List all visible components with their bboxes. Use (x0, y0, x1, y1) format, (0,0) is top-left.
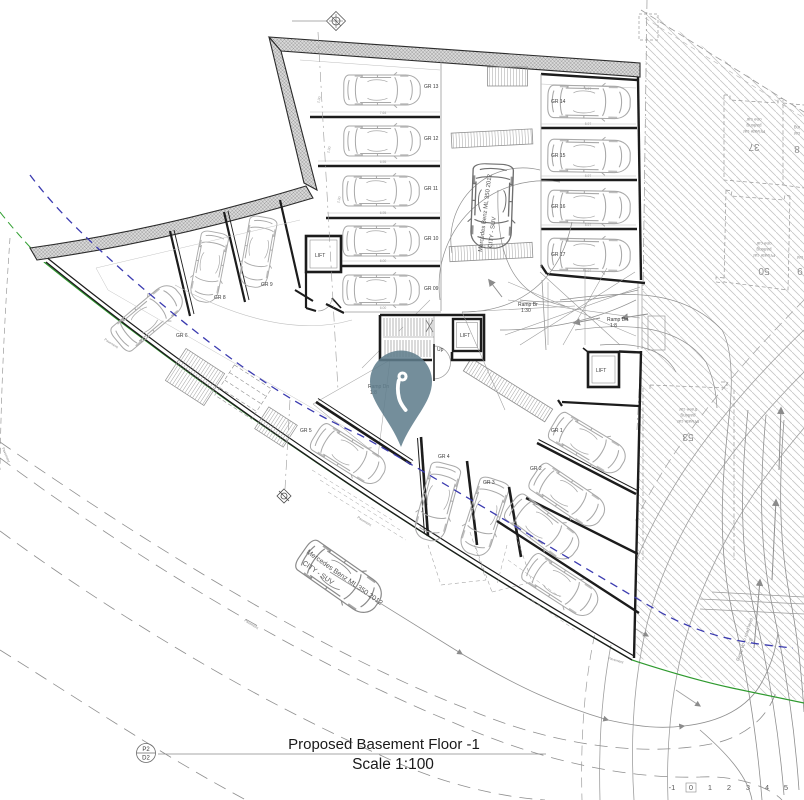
svg-text:6.95: 6.95 (380, 211, 387, 215)
svg-text:D2: D2 (142, 756, 150, 762)
svg-text:GR 13: GR 13 (424, 84, 439, 90)
svg-text:parking: parking (756, 247, 772, 252)
svg-text:5.97: 5.97 (585, 122, 592, 126)
svg-text:GR 2: GR 2 (530, 466, 542, 472)
svg-text:6.00: 6.00 (380, 306, 387, 310)
svg-text:GR 09: GR 09 (424, 286, 439, 292)
svg-text:2: 2 (727, 783, 731, 792)
svg-text:LIFT: LIFT (460, 333, 470, 339)
svg-text:P2: P2 (142, 747, 150, 753)
svg-text:6.95: 6.95 (380, 160, 387, 164)
svg-text:1: 1 (708, 783, 712, 792)
svg-text:Private car: Private car (753, 253, 775, 258)
svg-text:6.00: 6.00 (380, 259, 387, 263)
svg-text:GR 5: GR 5 (300, 428, 312, 434)
svg-text:GR 17: GR 17 (551, 252, 566, 258)
svg-text:Up: Up (437, 347, 444, 353)
svg-text:GR 10: GR 10 (424, 236, 439, 242)
svg-text:LIFT: LIFT (596, 368, 606, 374)
svg-text:car: car (796, 255, 803, 260)
svg-text:37: 37 (748, 141, 760, 152)
svg-text:Scale 1:100: Scale 1:100 (352, 756, 434, 773)
svg-text:Proposed Basement Floor -1: Proposed Basement Floor -1 (288, 736, 480, 753)
svg-text:GR 6: GR 6 (176, 333, 188, 339)
svg-text:one car: one car (746, 117, 762, 122)
svg-text:three car: three car (678, 407, 697, 412)
svg-text:ing: ing (793, 125, 800, 130)
svg-text:5.97: 5.97 (585, 174, 592, 178)
svg-text:8: 8 (794, 143, 800, 154)
svg-text:1:30: 1:30 (521, 308, 531, 314)
svg-text:5: 5 (784, 783, 788, 792)
svg-text:50: 50 (758, 265, 770, 276)
svg-text:GR 4: GR 4 (438, 454, 450, 460)
svg-text:LIFT: LIFT (315, 253, 325, 259)
svg-text:GR 9: GR 9 (261, 282, 273, 288)
svg-text:parking: parking (746, 123, 762, 128)
svg-text:Private car: Private car (743, 129, 765, 134)
svg-text:GR 8: GR 8 (214, 295, 226, 301)
svg-text:7.64: 7.64 (380, 111, 387, 115)
svg-text:GR 1: GR 1 (551, 428, 563, 434)
svg-text:one car: one car (756, 241, 772, 246)
svg-text:GR 15: GR 15 (551, 153, 566, 159)
svg-text:9: 9 (797, 265, 803, 276)
svg-text:GR 16: GR 16 (551, 204, 566, 210)
svg-text:5.97: 5.97 (585, 87, 592, 91)
svg-text:5.97: 5.97 (585, 223, 592, 227)
svg-text:GR 12: GR 12 (424, 136, 439, 142)
svg-text:1:8: 1:8 (610, 323, 617, 329)
svg-text:GR 14: GR 14 (551, 99, 566, 105)
svg-text:5.97: 5.97 (585, 269, 592, 273)
svg-text:GR 11: GR 11 (424, 186, 438, 192)
svg-text:parking: parking (680, 413, 696, 418)
svg-text:0: 0 (689, 783, 693, 792)
svg-text:car: car (793, 131, 800, 136)
svg-text:GR 3: GR 3 (483, 480, 495, 486)
svg-text:-1: -1 (669, 783, 676, 792)
